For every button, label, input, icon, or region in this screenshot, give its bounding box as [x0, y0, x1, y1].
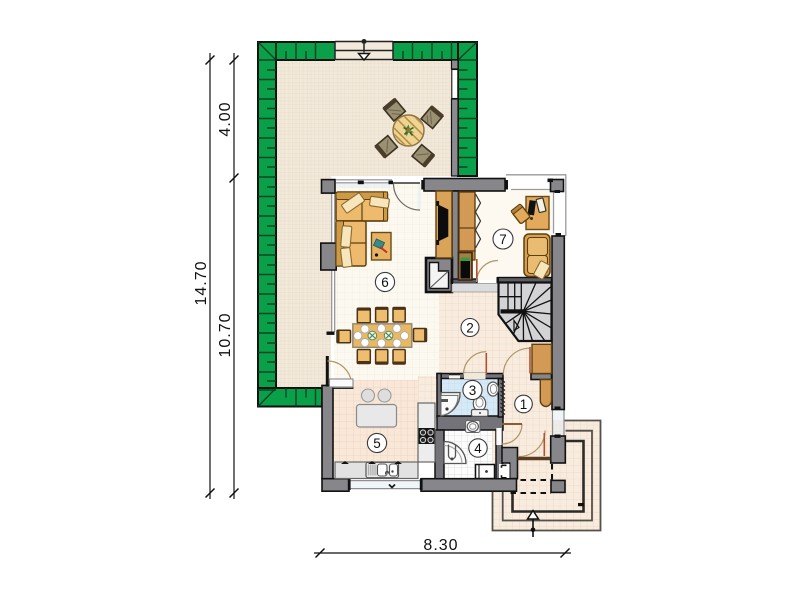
svg-text:6: 6 — [381, 275, 389, 290]
svg-text:3: 3 — [469, 383, 477, 398]
svg-text:8.30: 8.30 — [423, 537, 458, 554]
svg-text:10.70: 10.70 — [217, 312, 234, 357]
svg-text:5: 5 — [373, 436, 381, 451]
svg-text:1: 1 — [520, 397, 528, 412]
svg-text:4.00: 4.00 — [217, 101, 234, 136]
svg-text:14.70: 14.70 — [193, 260, 210, 305]
svg-text:7: 7 — [499, 232, 507, 247]
svg-text:2: 2 — [466, 321, 474, 336]
svg-text:4: 4 — [474, 441, 482, 456]
